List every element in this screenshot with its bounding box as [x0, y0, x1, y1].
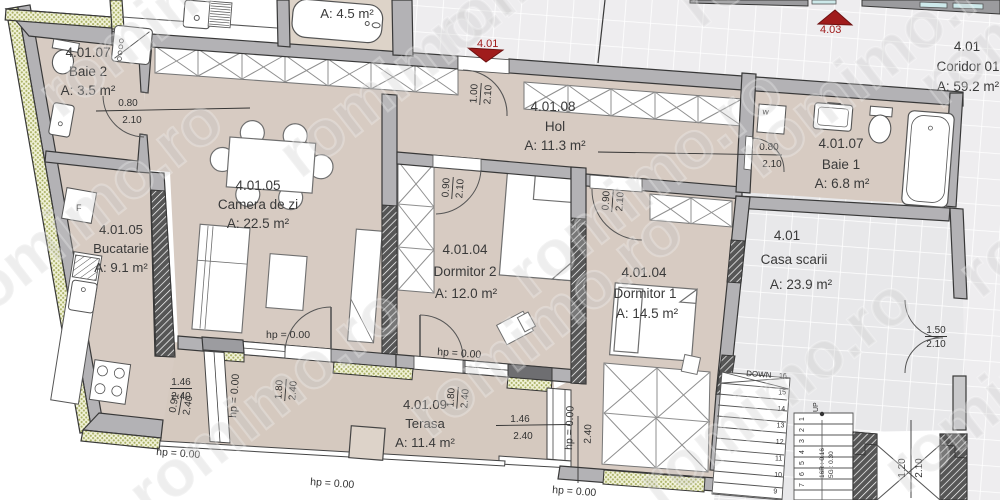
svg-text:Camera de zi: Camera de zi: [218, 197, 298, 212]
svg-text:A: 9.1 m²: A: 9.1 m²: [94, 260, 148, 275]
svg-text:7: 7: [799, 483, 806, 487]
svg-text:6: 6: [799, 472, 806, 476]
svg-text:9: 9: [773, 489, 777, 496]
svg-text:2.40: 2.40: [583, 424, 595, 444]
svg-text:A: 23.9 m²: A: 23.9 m²: [770, 277, 833, 292]
svg-text:2.10: 2.10: [482, 84, 494, 105]
svg-text:0.80: 0.80: [118, 98, 138, 109]
svg-text:4.01.08: 4.01.08: [530, 99, 575, 114]
svg-text:A: 22.5 m²: A: 22.5 m²: [227, 216, 290, 231]
svg-text:5: 5: [799, 461, 806, 465]
svg-text:A: 6.8 m²: A: 6.8 m²: [815, 176, 870, 191]
svg-text:16R : 0.16: 16R : 0.16: [819, 448, 826, 478]
svg-text:Baie 1: Baie 1: [822, 157, 860, 172]
svg-text:5G : 0.30: 5G : 0.30: [828, 451, 835, 478]
svg-text:A: 14.5 m²: A: 14.5 m²: [616, 306, 679, 321]
svg-text:4: 4: [799, 450, 806, 454]
svg-text:12: 12: [776, 439, 784, 446]
svg-text:hp = 0.00: hp = 0.00: [563, 405, 577, 450]
svg-text:Casa scarii: Casa scarii: [761, 252, 828, 267]
svg-text:A: 11.3 m²: A: 11.3 m²: [524, 138, 586, 153]
svg-text:1.46: 1.46: [171, 377, 191, 388]
svg-text:4.01.05: 4.01.05: [235, 178, 280, 193]
svg-text:Hol: Hol: [545, 119, 565, 134]
svg-text:A: 12.0 m²: A: 12.0 m²: [435, 286, 498, 301]
svg-text:0.90: 0.90: [440, 177, 452, 198]
svg-text:1.50: 1.50: [926, 325, 946, 336]
svg-text:4.01.04: 4.01.04: [442, 242, 488, 257]
svg-text:3: 3: [799, 439, 806, 443]
svg-text:10: 10: [774, 472, 782, 479]
svg-text:4.01: 4.01: [774, 228, 800, 243]
svg-text:1.00: 1.00: [468, 83, 480, 104]
svg-text:2: 2: [799, 428, 806, 432]
svg-text:2.10: 2.10: [454, 178, 466, 199]
svg-text:1.46: 1.46: [510, 414, 530, 425]
svg-text:2.10: 2.10: [926, 339, 946, 350]
svg-text:4.03: 4.03: [820, 24, 841, 36]
svg-text:Dormitor 2: Dormitor 2: [433, 264, 496, 279]
svg-text:11: 11: [775, 456, 782, 463]
svg-text:2.40: 2.40: [513, 431, 533, 442]
svg-text:A: 4.5 m²: A: 4.5 m²: [320, 6, 374, 21]
